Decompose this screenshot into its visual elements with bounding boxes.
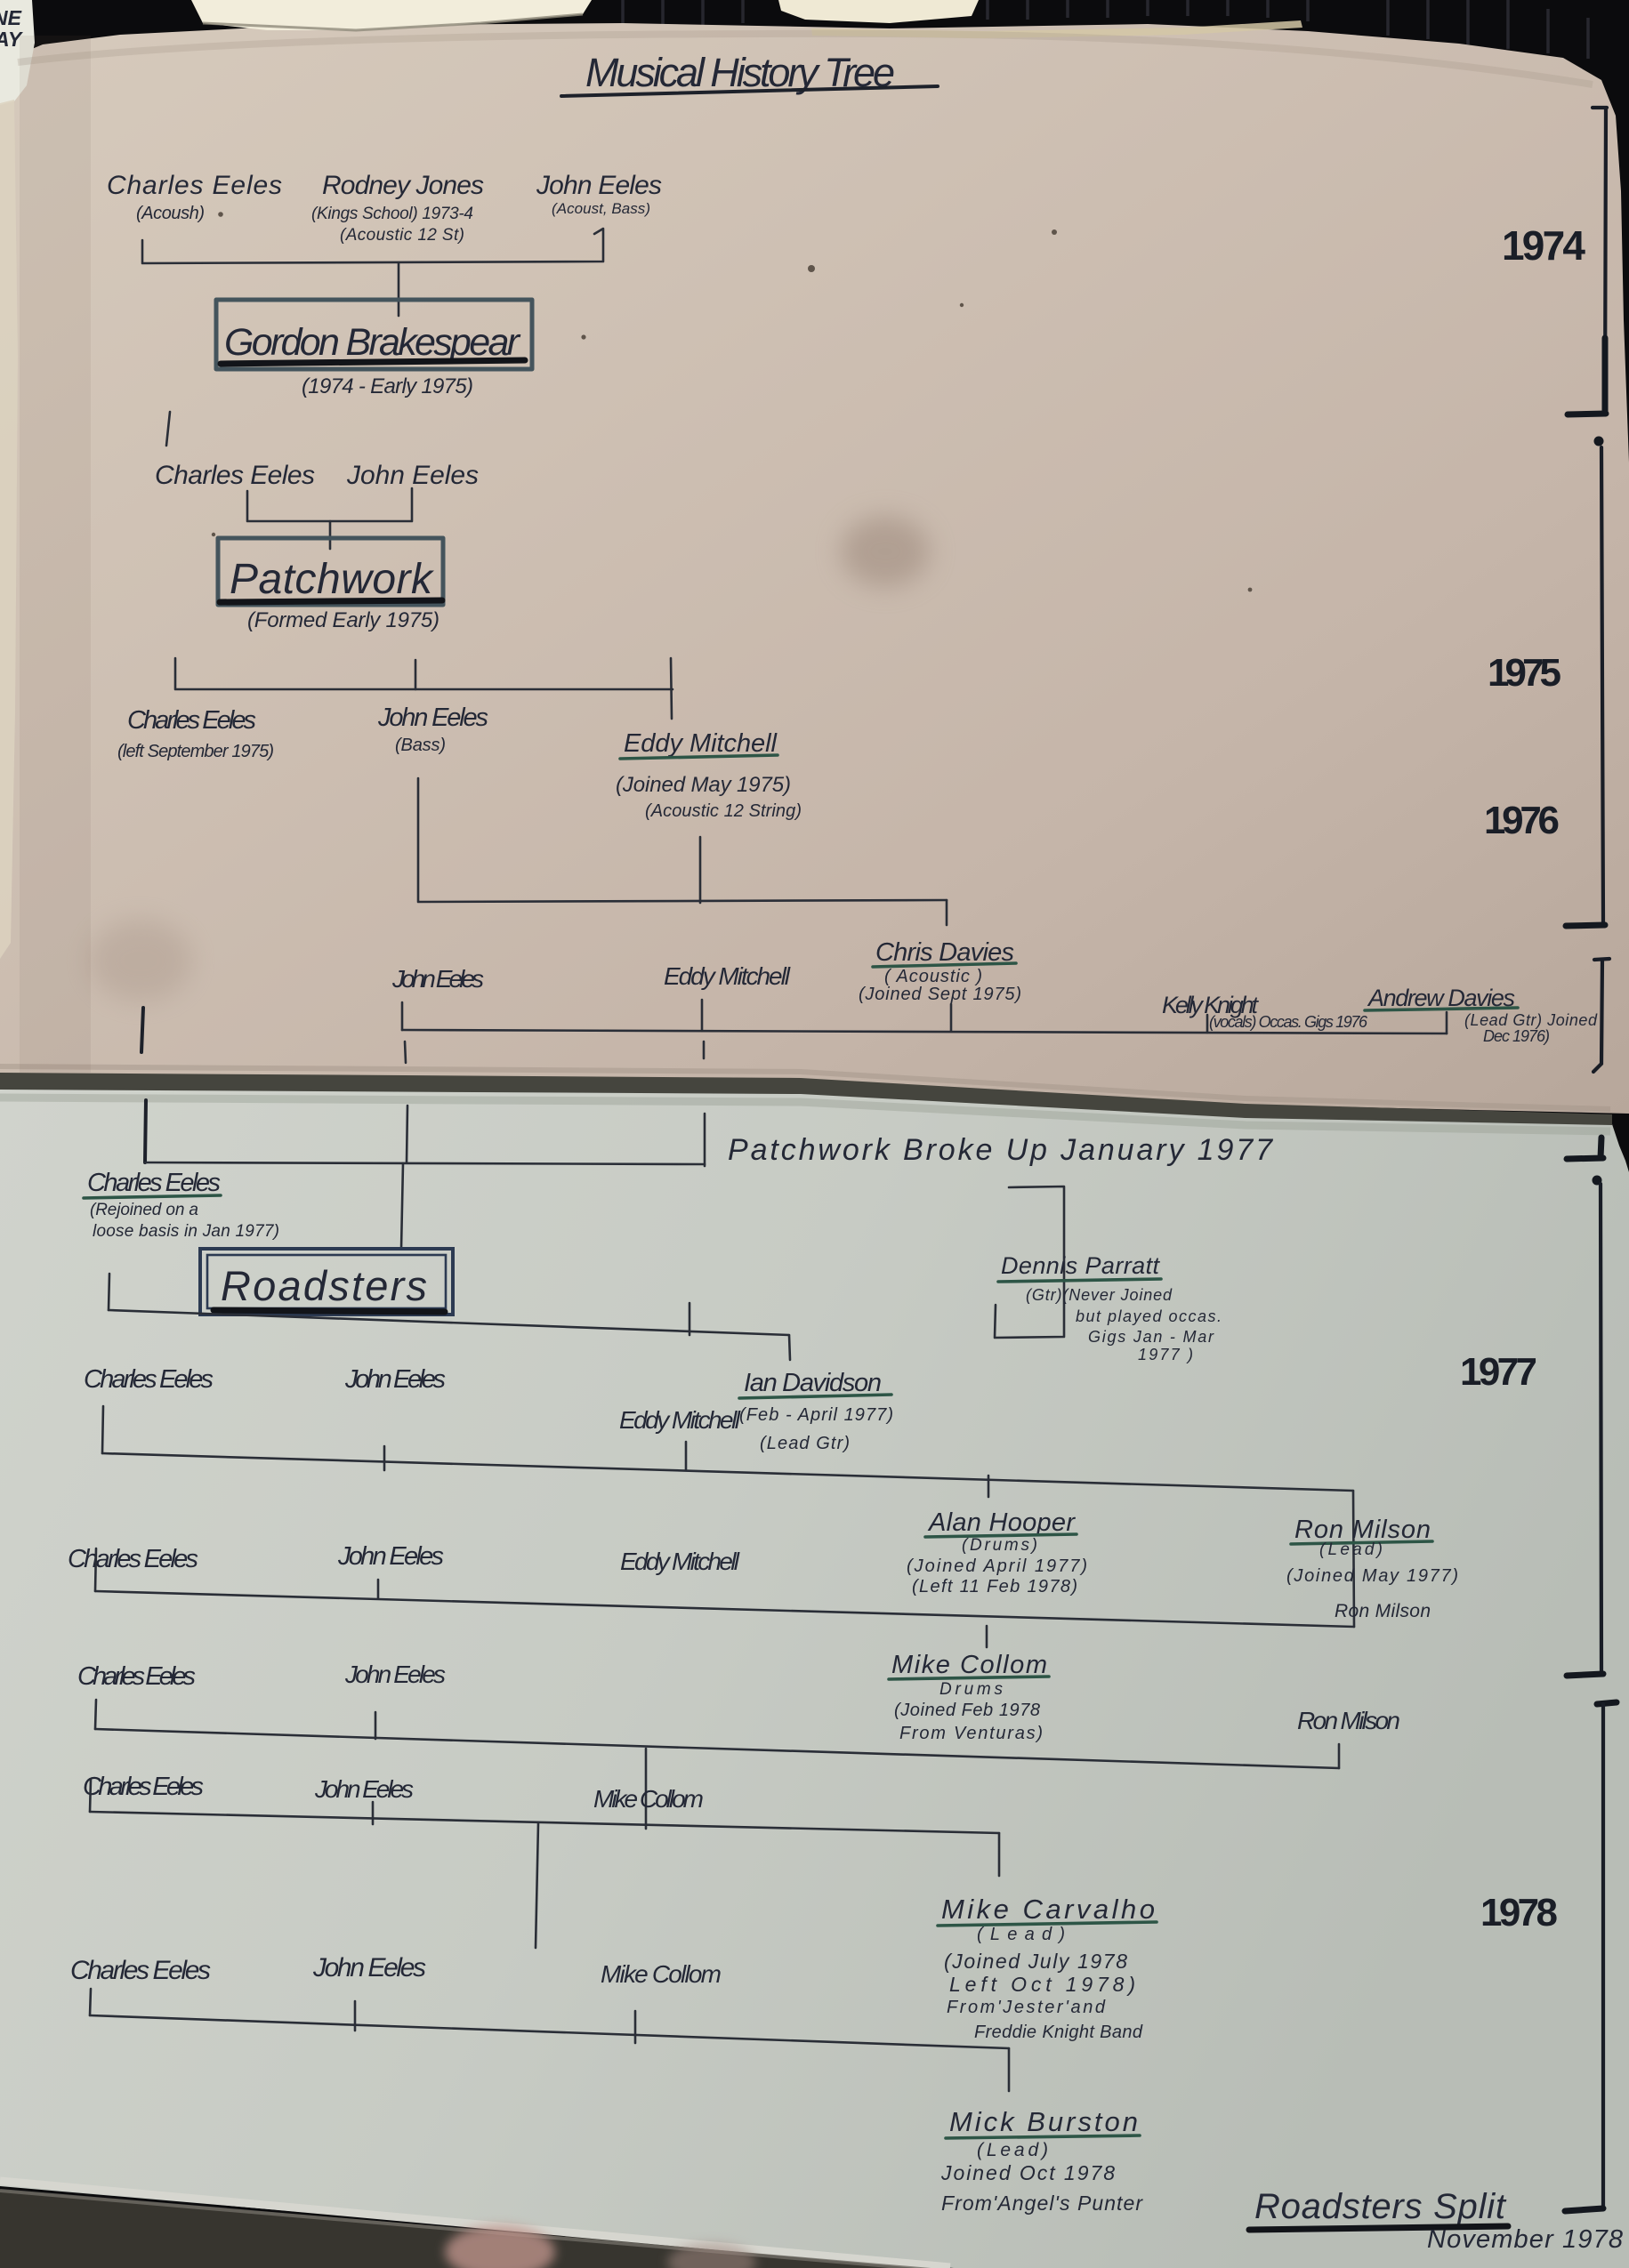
svg-text:Eddy Mitchell: Eddy Mitchell — [620, 1548, 740, 1575]
svg-text:(Lead Gtr): (Lead Gtr) — [760, 1434, 850, 1453]
svg-text:Charles Eeles: Charles Eeles — [107, 171, 282, 200]
svg-text:Rodney Jones: Rodney Jones — [322, 171, 484, 200]
svg-text:Dec 1976): Dec 1976) — [1483, 1027, 1550, 1045]
svg-text:(1974 - Early 1975): (1974 - Early 1975) — [302, 374, 473, 398]
svg-text:John Eeles: John Eeles — [344, 1661, 446, 1688]
svg-text:Alan Hooper: Alan Hooper — [927, 1508, 1076, 1537]
svg-text:1977: 1977 — [1460, 1350, 1540, 1394]
svg-text:(Joined July 1978: (Joined July 1978 — [944, 1950, 1127, 1973]
svg-text:Charles Eeles: Charles Eeles — [87, 1169, 221, 1197]
svg-text:Mike Collom: Mike Collom — [601, 1960, 722, 1988]
svg-text:From'Angel's Punter: From'Angel's Punter — [941, 2192, 1143, 2215]
svg-text:Mike Carvalho: Mike Carvalho — [941, 1894, 1155, 1925]
svg-text:(Lead Gtr) Joined: (Lead Gtr) Joined — [1464, 1011, 1598, 1029]
svg-text:Gordon Brakespear: Gordon Brakespear — [224, 321, 521, 364]
svg-text:Drums: Drums — [939, 1680, 1004, 1699]
svg-text:Mick Burston: Mick Burston — [949, 2106, 1138, 2137]
svg-text:Charles Eeles: Charles Eeles — [84, 1365, 214, 1394]
svg-text:1974: 1974 — [1502, 222, 1588, 269]
svg-text:(Formed Early 1975): (Formed Early 1975) — [247, 608, 440, 632]
svg-text:Gigs Jan - Mar: Gigs Jan - Mar — [1088, 1328, 1214, 1346]
svg-text:John Eeles: John Eeles — [377, 704, 488, 732]
svg-text:loose basis in Jan 1977): loose basis in Jan 1977) — [93, 1222, 279, 1241]
svg-text:Mike Collom: Mike Collom — [593, 1785, 704, 1813]
svg-text:November 1978: November 1978 — [1427, 2225, 1623, 2254]
svg-text:(left September 1975): (left September 1975) — [117, 742, 274, 761]
svg-text:(Joined April 1977): (Joined April 1977) — [907, 1556, 1087, 1576]
svg-text:John Eeles: John Eeles — [344, 1365, 446, 1394]
svg-text:Charles Eeles: Charles Eeles — [127, 706, 256, 735]
svg-text:John Eeles: John Eeles — [346, 461, 479, 490]
svg-text:Freddie Knight Band: Freddie Knight Band — [974, 2023, 1143, 2042]
svg-text:(Joined May 1975): (Joined May 1975) — [616, 773, 791, 797]
svg-text:From Venturas): From Venturas) — [899, 1724, 1043, 1743]
svg-text:Charles Eeles: Charles Eeles — [77, 1662, 196, 1691]
svg-text:Charles Eeles: Charles Eeles — [155, 461, 315, 490]
svg-text:Charles Eeles: Charles Eeles — [83, 1773, 204, 1801]
svg-text:1975: 1975 — [1488, 651, 1564, 695]
svg-text:NE: NE — [0, 6, 22, 29]
svg-text:(Acoustic 12 String): (Acoustic 12 String) — [645, 801, 802, 821]
svg-text:(Drums): (Drums) — [962, 1536, 1037, 1555]
svg-text:( Acoustic ): ( Acoustic ) — [884, 967, 982, 986]
svg-text:(vocals) Occas. Gigs 1976: (vocals) Occas. Gigs 1976 — [1209, 1013, 1368, 1031]
svg-text:(Joined Sept 1975): (Joined Sept 1975) — [859, 985, 1021, 1004]
svg-text:(Gtr)(Never Joined: (Gtr)(Never Joined — [1026, 1286, 1173, 1304]
svg-text:Patchwork: Patchwork — [230, 556, 435, 603]
svg-text:John Eeles: John Eeles — [314, 1775, 414, 1803]
svg-text:Charles Eeles: Charles Eeles — [68, 1545, 198, 1573]
svg-text:(Acoush): (Acoush) — [136, 204, 205, 223]
svg-text:(Bass): (Bass) — [395, 736, 446, 755]
svg-text:Eddy Mitchell: Eddy Mitchell — [624, 729, 778, 758]
svg-text:Ron Milson: Ron Milson — [1335, 1601, 1431, 1621]
svg-text:but played occas.: but played occas. — [1076, 1307, 1222, 1325]
svg-text:(Joined May 1977): (Joined May 1977) — [1286, 1566, 1458, 1586]
svg-text:Roadsters Split: Roadsters Split — [1254, 2187, 1507, 2226]
svg-text:John Eeles: John Eeles — [337, 1542, 444, 1571]
svg-text:Ron Milson: Ron Milson — [1297, 1707, 1400, 1734]
svg-text:Ian Davidson: Ian Davidson — [744, 1369, 882, 1397]
svg-text:(Acoustic 12 St): (Acoustic 12 St) — [340, 226, 464, 245]
svg-text:(Left 11 Feb 1978): (Left 11 Feb 1978) — [912, 1577, 1077, 1596]
svg-text:(Feb - April 1977): (Feb - April 1977) — [739, 1405, 893, 1425]
svg-text:Eddy Mitchell: Eddy Mitchell — [664, 962, 791, 990]
svg-text:1976: 1976 — [1484, 799, 1562, 842]
svg-text:(Acoust, Bass): (Acoust, Bass) — [552, 200, 650, 217]
svg-text:Dennis Parratt: Dennis Parratt — [1001, 1252, 1160, 1279]
svg-text:Mike Collom: Mike Collom — [891, 1651, 1047, 1679]
svg-text:1977 ): 1977 ) — [1138, 1346, 1193, 1363]
svg-text:John Eeles: John Eeles — [536, 171, 662, 200]
svg-text:(Rejoined on a: (Rejoined on a — [90, 1201, 198, 1219]
svg-text:1978: 1978 — [1480, 1891, 1560, 1934]
svg-text:Patchwork Broke Up January 197: Patchwork Broke Up January 1977 — [728, 1133, 1273, 1167]
svg-text:John Eeles: John Eeles — [312, 1953, 426, 1982]
svg-text:(Kings School) 1973-4: (Kings School) 1973-4 — [311, 205, 473, 223]
svg-text:Ron Milson: Ron Milson — [1294, 1516, 1431, 1544]
svg-text:John Eeles: John Eeles — [391, 965, 484, 993]
svg-text:Eddy Mitchell: Eddy Mitchell — [619, 1406, 741, 1434]
svg-text:Charles Eeles: Charles Eeles — [70, 1956, 211, 1985]
svg-text:(Joined Feb 1978: (Joined Feb 1978 — [894, 1701, 1040, 1720]
